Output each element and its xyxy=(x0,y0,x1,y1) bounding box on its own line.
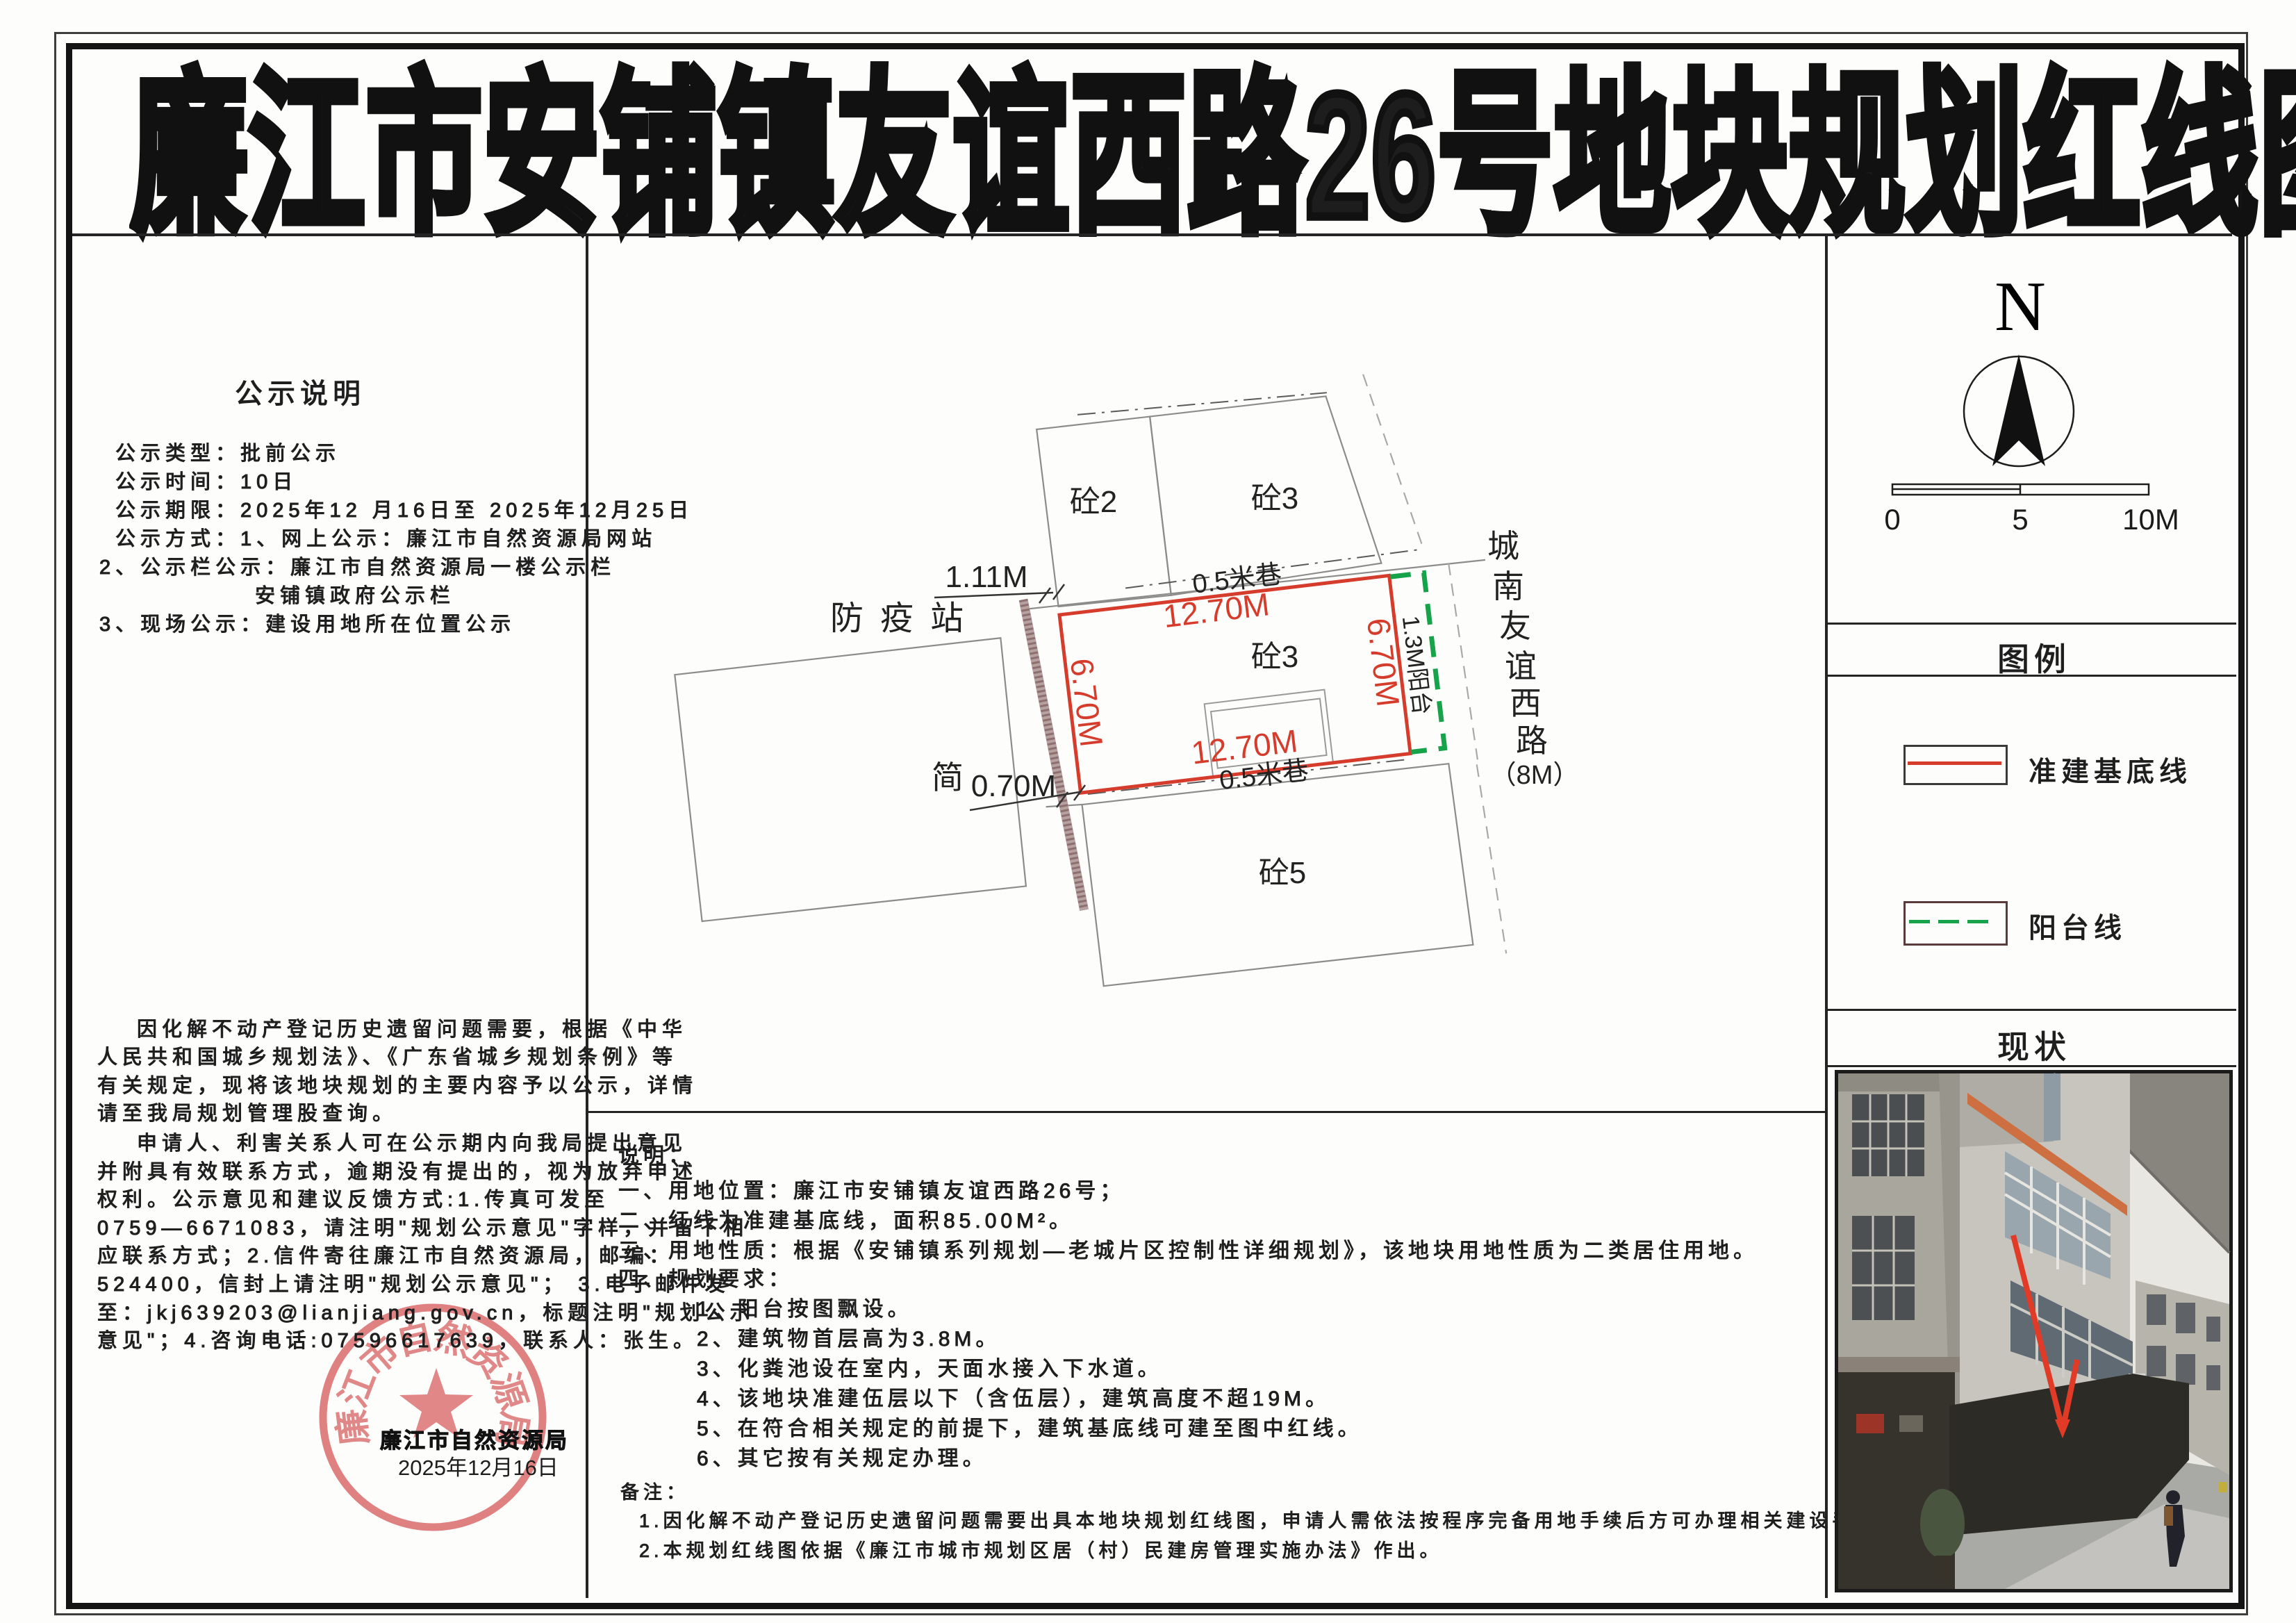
svg-text:6.70M: 6.70M xyxy=(1064,657,1110,749)
svg-text:砼5: 砼5 xyxy=(1259,856,1306,890)
svg-text:友: 友 xyxy=(1499,608,1531,644)
svg-text:10M: 10M xyxy=(2122,503,2179,536)
svg-text:1.11M: 1.11M xyxy=(945,560,1027,594)
svg-text:路: 路 xyxy=(1516,723,1548,759)
svg-text:砼2: 砼2 xyxy=(1070,485,1117,519)
svg-text:南: 南 xyxy=(1492,568,1524,604)
svg-text:N: N xyxy=(1994,267,2046,346)
svg-text:砼3: 砼3 xyxy=(1251,481,1298,516)
svg-text:0.5米巷: 0.5米巷 xyxy=(1191,560,1283,600)
svg-text:砼3: 砼3 xyxy=(1251,640,1298,674)
svg-text:5: 5 xyxy=(2012,503,2028,536)
svg-text:西: 西 xyxy=(1510,685,1542,721)
svg-text:防疫站: 防疫站 xyxy=(830,600,980,637)
svg-text:城: 城 xyxy=(1487,528,1519,564)
svg-text:谊: 谊 xyxy=(1505,648,1537,684)
svg-text:简: 简 xyxy=(932,759,964,796)
svg-text:0: 0 xyxy=(1884,503,1900,536)
svg-text:（8M）: （8M） xyxy=(1490,761,1580,790)
